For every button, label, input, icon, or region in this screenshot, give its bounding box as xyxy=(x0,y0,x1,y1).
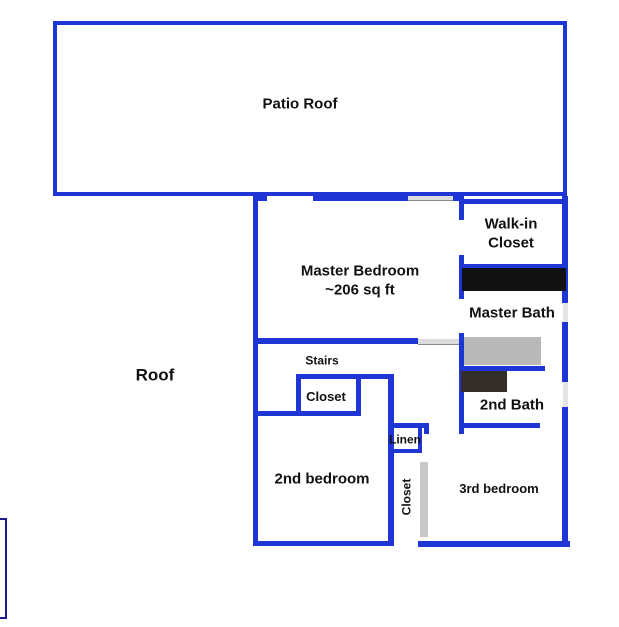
walk-in-line1: Walk-in xyxy=(485,215,538,234)
stairs-label: Stairs xyxy=(305,354,338,369)
master-bath-tub-fixture xyxy=(462,268,566,291)
master-bath-label: Master Bath xyxy=(469,305,555,324)
wall-hall-closet-left xyxy=(296,374,301,416)
wall-hall-closet-top xyxy=(296,374,393,379)
wall-right-outer-b xyxy=(562,322,568,382)
wall-second-bath-bottom-stub xyxy=(459,423,464,434)
wall-left-outer xyxy=(253,196,258,546)
wall-second-bath-bottom xyxy=(459,423,540,428)
master-bath-vanity-fixture xyxy=(464,337,541,365)
wall-bottom-left xyxy=(253,541,392,546)
floor-plan: Patio Roof Master Bedroom ~206 sq ft Wal… xyxy=(0,0,619,627)
door-marker-stairs xyxy=(418,339,459,345)
master-bedroom-label: Master Bedroom ~206 sq ft xyxy=(301,262,419,300)
wall-hallway-divider xyxy=(388,374,394,546)
window-marker-master-bath xyxy=(563,303,568,322)
wall-right-outer-c xyxy=(562,407,568,547)
walk-in-closet-label: Walk-in Closet xyxy=(485,215,538,253)
door-marker-master-top xyxy=(408,196,453,201)
hall-closet-label: Closet xyxy=(306,389,346,405)
second-bath-label: 2nd Bath xyxy=(480,397,544,416)
linen-label: Linen xyxy=(389,433,421,448)
second-bedroom-label: 2nd bedroom xyxy=(274,471,369,490)
bedroom-closet-door-strip xyxy=(420,462,428,537)
wall-linen-top-stub xyxy=(424,423,429,434)
master-bedroom-area: ~206 sq ft xyxy=(301,281,419,300)
third-bedroom-label: 3rd bedroom xyxy=(459,481,538,497)
offscreen-room-outline xyxy=(0,518,7,619)
roof-label: Roof xyxy=(136,364,175,385)
wall-master-top-b xyxy=(313,196,408,201)
wall-stairs-top xyxy=(253,338,418,344)
master-bedroom-name: Master Bedroom xyxy=(301,262,419,281)
walk-in-line2: Closet xyxy=(485,234,538,253)
window-marker-second-bath xyxy=(563,382,568,407)
wall-bottom-right xyxy=(418,541,570,547)
patio-roof-label: Patio Roof xyxy=(263,96,338,115)
wall-second-bedroom-top xyxy=(253,411,361,416)
second-bath-vanity-fixture xyxy=(461,371,507,392)
wall-hall-closet-right xyxy=(356,374,361,416)
bedroom-closet-label: Closet xyxy=(400,479,415,516)
wall-walkin-top xyxy=(459,199,567,204)
wall-linen-bottom xyxy=(392,449,422,453)
